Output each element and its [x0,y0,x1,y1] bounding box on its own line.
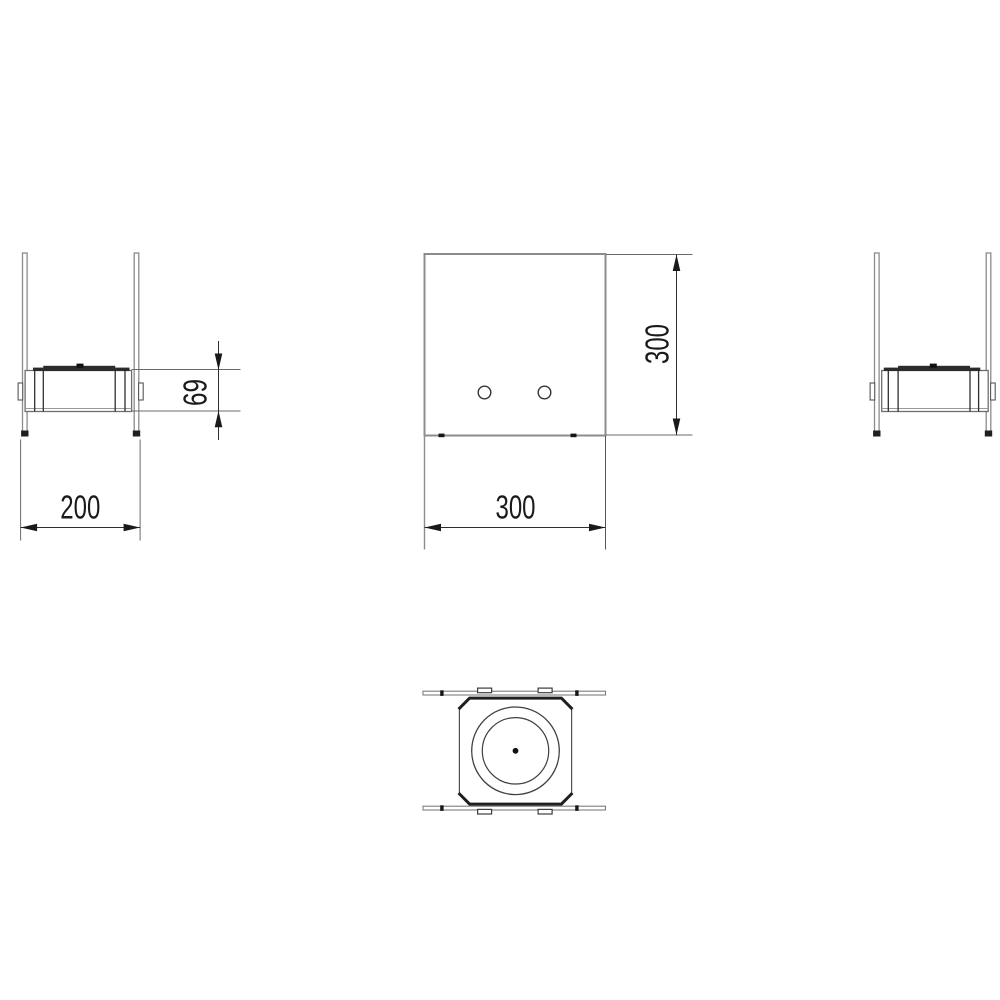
rail-clip [478,809,492,814]
dim-300-vertical: 300 [606,255,693,436]
side-view-body [18,253,143,437]
side-view-body [870,253,995,437]
arrowhead-right [124,524,141,532]
right-side-view [870,253,995,437]
burner-center-dot [513,748,519,754]
dim-300-width-label: 300 [496,488,536,525]
rail-tick [440,805,443,811]
dim-300-height-label: 300 [639,324,676,364]
arrowhead-down [673,419,681,436]
rail-tick [575,690,578,696]
dim-300-horizontal: 300 [425,436,606,550]
rail-tick [440,690,443,696]
rail-clip [538,688,552,693]
arrowhead-right [589,524,606,532]
arrowhead-left [21,524,37,532]
rail-tick [575,805,578,811]
dim-69: 69 [132,341,241,440]
arrowhead-up [673,255,681,272]
panel-hole-left [478,386,491,399]
top-plan-view [423,688,606,814]
dim-69-label: 69 [177,379,214,406]
technical-drawing: 69 200 300 [0,0,1000,1000]
dim-200-label: 200 [60,488,100,525]
drawing-canvas: 69 200 300 [0,0,1000,1000]
front-panel [425,254,606,436]
arrowhead-down [215,354,223,371]
panel-foot-tick-right [571,434,577,438]
arrowhead-up [215,411,223,428]
arrowhead-left [425,524,442,532]
rail-clip [478,688,492,693]
left-side-view: 69 200 [18,253,240,541]
panel-hole-right [538,386,551,399]
panel-foot-tick-left [439,434,445,438]
dim-200: 200 [21,440,141,541]
front-view: 300 300 [425,254,693,550]
rail-clip [538,809,552,814]
